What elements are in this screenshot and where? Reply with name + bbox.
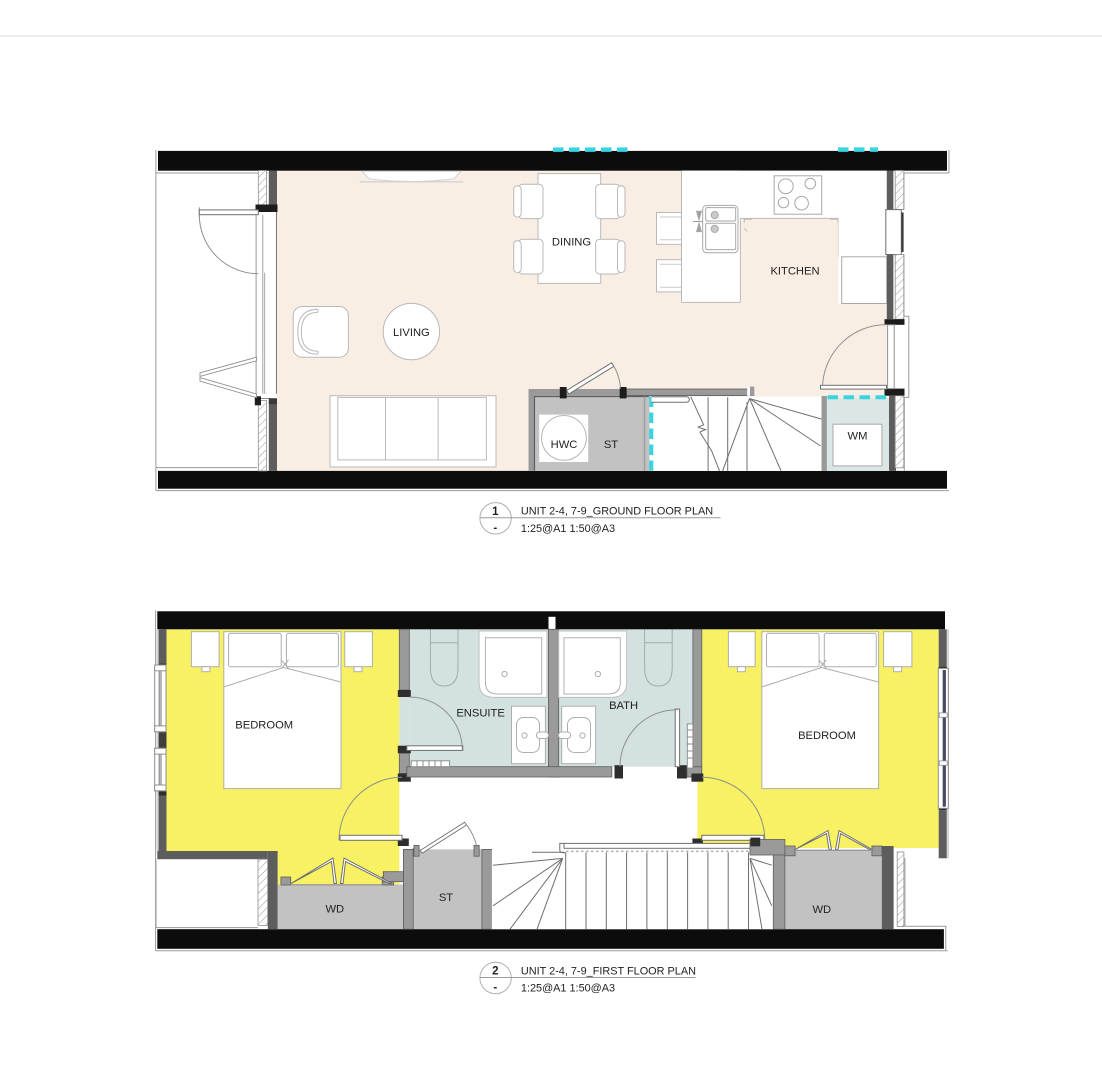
svg-text:-: - (493, 982, 497, 994)
svg-text:WD: WD (325, 904, 344, 916)
svg-text:ST: ST (604, 439, 618, 451)
svg-text:UNIT 2-4, 7-9_FIRST FLOOR PLAN: UNIT 2-4, 7-9_FIRST FLOOR PLAN (521, 965, 696, 977)
svg-text:BEDROOM: BEDROOM (798, 730, 856, 742)
svg-text:1:25@A1 1:50@A3: 1:25@A1 1:50@A3 (521, 983, 615, 995)
svg-text:ST: ST (439, 892, 453, 904)
svg-text:LIVING: LIVING (393, 327, 430, 339)
svg-text:1:25@A1 1:50@A3: 1:25@A1 1:50@A3 (521, 523, 615, 535)
svg-text:WD: WD (812, 904, 831, 916)
svg-text:KITCHEN: KITCHEN (770, 266, 819, 278)
svg-text:HWC: HWC (551, 439, 578, 451)
svg-text:2: 2 (492, 966, 498, 978)
svg-text:-: - (493, 523, 497, 535)
svg-text:UNIT 2-4, 7-9_GROUND FLOOR PLA: UNIT 2-4, 7-9_GROUND FLOOR PLAN (521, 506, 713, 518)
svg-text:1: 1 (492, 506, 499, 518)
svg-text:WM: WM (848, 431, 868, 443)
svg-text:DINING: DINING (552, 236, 591, 248)
svg-text:BEDROOM: BEDROOM (235, 720, 293, 732)
svg-text:BATH: BATH (609, 700, 638, 712)
svg-text:ENSUITE: ENSUITE (456, 708, 505, 720)
